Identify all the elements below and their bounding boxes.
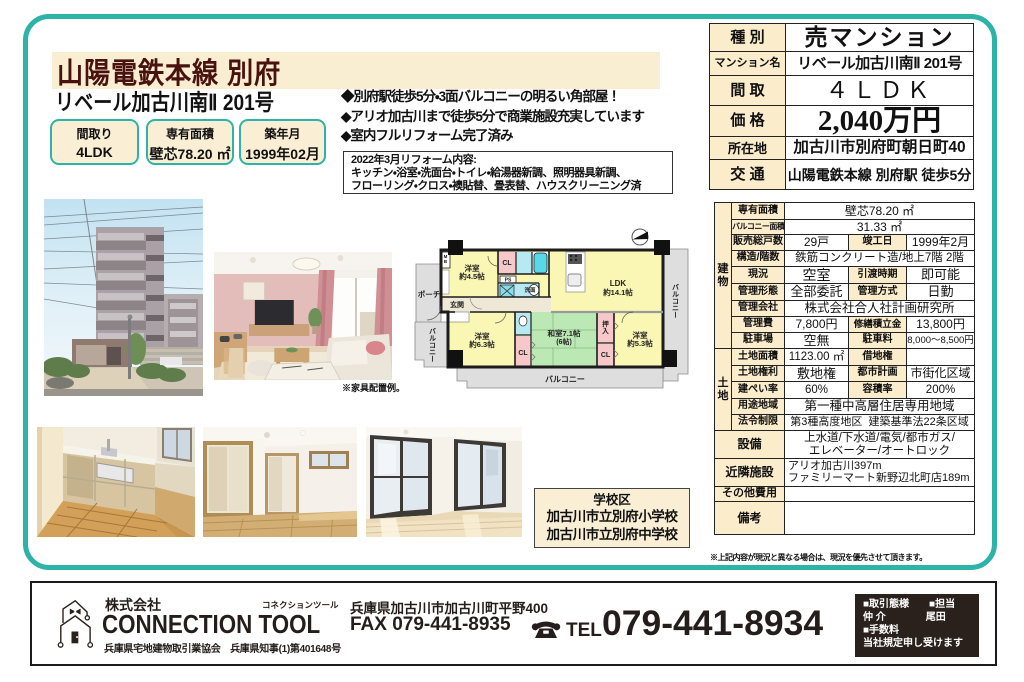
svg-text:バルコニー: バルコニー [429, 328, 437, 363]
svg-text:約6.3帖: 約6.3帖 [468, 339, 495, 349]
svg-text:バルコニー: バルコニー [545, 375, 585, 384]
svg-text:和室7.1帖: 和室7.1帖 [548, 328, 581, 338]
svg-text:CL: CL [601, 352, 611, 359]
svg-text:約5.3帖: 約5.3帖 [626, 338, 653, 348]
svg-text:玄関: 玄関 [450, 300, 464, 309]
svg-text:CL: CL [502, 260, 512, 267]
svg-text:ポーチ: ポーチ [418, 289, 441, 299]
svg-text:押: 押 [602, 319, 609, 328]
svg-text:バルコニー: バルコニー [672, 284, 680, 319]
svg-text:約14.1帖: 約14.1帖 [602, 287, 633, 297]
svg-text:LDK: LDK [610, 279, 627, 288]
svg-text:洗面: 洗面 [524, 286, 536, 294]
svg-text:入: 入 [601, 327, 609, 335]
svg-text:PS: PS [505, 278, 512, 284]
svg-text:約4.5帖: 約4.5帖 [458, 271, 485, 281]
svg-text:(6帖): (6帖) [556, 337, 572, 346]
svg-text:CL: CL [518, 350, 528, 357]
